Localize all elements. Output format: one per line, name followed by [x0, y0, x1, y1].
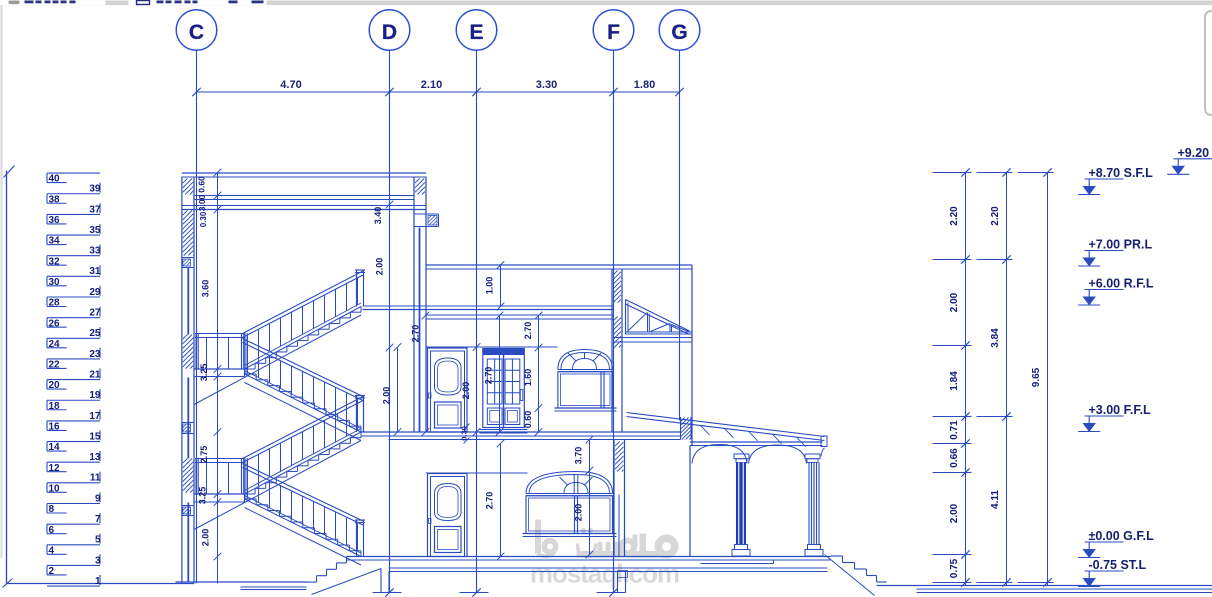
svg-text:0.66: 0.66	[949, 448, 960, 468]
svg-text:30: 30	[49, 277, 61, 288]
svg-text:1.80: 1.80	[634, 79, 655, 91]
svg-text:3.30: 3.30	[536, 79, 557, 91]
svg-text:9.65: 9.65	[1031, 367, 1042, 387]
svg-text:17: 17	[89, 411, 101, 422]
svg-text:1.60: 1.60	[523, 369, 533, 387]
svg-text:D: D	[382, 21, 397, 44]
svg-text:2.70: 2.70	[411, 325, 421, 343]
svg-text:4: 4	[49, 545, 55, 556]
svg-text:7: 7	[95, 514, 101, 525]
svg-text:2.70: 2.70	[523, 322, 533, 340]
svg-text:2.00: 2.00	[574, 504, 584, 522]
svg-text:35: 35	[89, 225, 101, 236]
svg-text:F: F	[607, 21, 620, 44]
svg-text:10: 10	[49, 483, 61, 494]
svg-text:2.20: 2.20	[990, 206, 1001, 226]
svg-text:1: 1	[95, 576, 101, 587]
svg-text:E: E	[469, 21, 483, 44]
svg-text:26: 26	[49, 318, 61, 329]
svg-text:31: 31	[89, 266, 101, 277]
svg-text:4.70: 4.70	[280, 79, 301, 91]
svg-text:25: 25	[89, 328, 101, 339]
svg-text:0.75: 0.75	[949, 558, 960, 578]
svg-text:20: 20	[49, 380, 61, 391]
svg-text:21: 21	[89, 369, 101, 380]
svg-text:+7.00 PR.L: +7.00 PR.L	[1089, 238, 1153, 252]
svg-text:2.00: 2.00	[461, 382, 471, 400]
svg-text:2.10: 2.10	[421, 79, 442, 91]
svg-text:37: 37	[89, 204, 101, 215]
svg-text:3.25: 3.25	[198, 487, 208, 505]
svg-text:0.60: 0.60	[523, 411, 533, 429]
svg-text:23: 23	[89, 349, 101, 360]
svg-text:2: 2	[49, 566, 55, 577]
svg-text:36: 36	[49, 215, 61, 226]
svg-text:9: 9	[95, 493, 101, 504]
svg-text:2.00: 2.00	[201, 529, 211, 547]
svg-text:1.00: 1.00	[485, 277, 495, 295]
svg-text:2.00: 2.00	[949, 503, 960, 523]
svg-text:32: 32	[49, 256, 61, 267]
svg-text:24: 24	[49, 339, 61, 350]
svg-text:C: C	[189, 21, 204, 44]
svg-text:29: 29	[89, 287, 101, 298]
svg-text:+6.00 R.F.L: +6.00 R.F.L	[1089, 277, 1154, 291]
svg-text:18: 18	[49, 401, 61, 412]
svg-text:14: 14	[49, 442, 61, 453]
svg-text:39: 39	[89, 184, 101, 195]
svg-text:+3.00 F.F.L: +3.00 F.F.L	[1089, 403, 1152, 417]
svg-text:8: 8	[49, 504, 55, 515]
svg-text:19: 19	[89, 390, 101, 401]
svg-text:2.00: 2.00	[382, 387, 392, 405]
svg-text:11: 11	[90, 473, 101, 484]
svg-text:16: 16	[49, 422, 61, 433]
svg-text:22: 22	[49, 360, 61, 371]
svg-text:2.00: 2.00	[375, 258, 385, 276]
svg-text:5: 5	[95, 535, 101, 546]
svg-text:3.00: 3.00	[197, 194, 207, 211]
svg-text:12: 12	[49, 463, 61, 474]
svg-text:3.60: 3.60	[201, 280, 211, 298]
svg-text:1.84: 1.84	[949, 371, 960, 391]
svg-text:mostaql.com: mostaql.com	[530, 559, 679, 589]
svg-text:2.20: 2.20	[949, 206, 960, 226]
svg-text:+9.20: +9.20	[1178, 146, 1210, 160]
svg-text:28: 28	[49, 298, 61, 309]
svg-text:15: 15	[89, 431, 101, 442]
svg-text:0.71: 0.71	[949, 420, 960, 440]
svg-text:±0.00 G.F.L: ±0.00 G.F.L	[1089, 529, 1155, 543]
svg-text:2.70: 2.70	[485, 492, 495, 510]
svg-text:3.40: 3.40	[373, 207, 383, 225]
svg-text:+8.70 S.F.L: +8.70 S.F.L	[1089, 166, 1154, 180]
svg-text:3.84: 3.84	[990, 328, 1001, 348]
svg-text:2.00: 2.00	[949, 292, 960, 312]
svg-text:38: 38	[49, 194, 61, 205]
svg-text:40: 40	[49, 174, 61, 185]
svg-text:3: 3	[95, 555, 101, 566]
svg-text:3.70: 3.70	[574, 447, 584, 465]
svg-text:2.70: 2.70	[484, 367, 494, 385]
svg-text:2.75: 2.75	[199, 446, 209, 464]
svg-text:33: 33	[89, 246, 101, 257]
svg-text:13: 13	[89, 452, 101, 463]
svg-text:0.30: 0.30	[199, 211, 208, 227]
svg-text:-0.75 ST.L: -0.75 ST.L	[1089, 558, 1147, 572]
svg-text:27: 27	[89, 308, 101, 319]
svg-text:G: G	[671, 21, 687, 44]
svg-text:4.11: 4.11	[990, 490, 1001, 509]
svg-text:3.25: 3.25	[199, 364, 209, 382]
svg-text:0.60: 0.60	[197, 176, 207, 193]
svg-text:6: 6	[49, 525, 55, 536]
svg-text:34: 34	[49, 236, 61, 247]
